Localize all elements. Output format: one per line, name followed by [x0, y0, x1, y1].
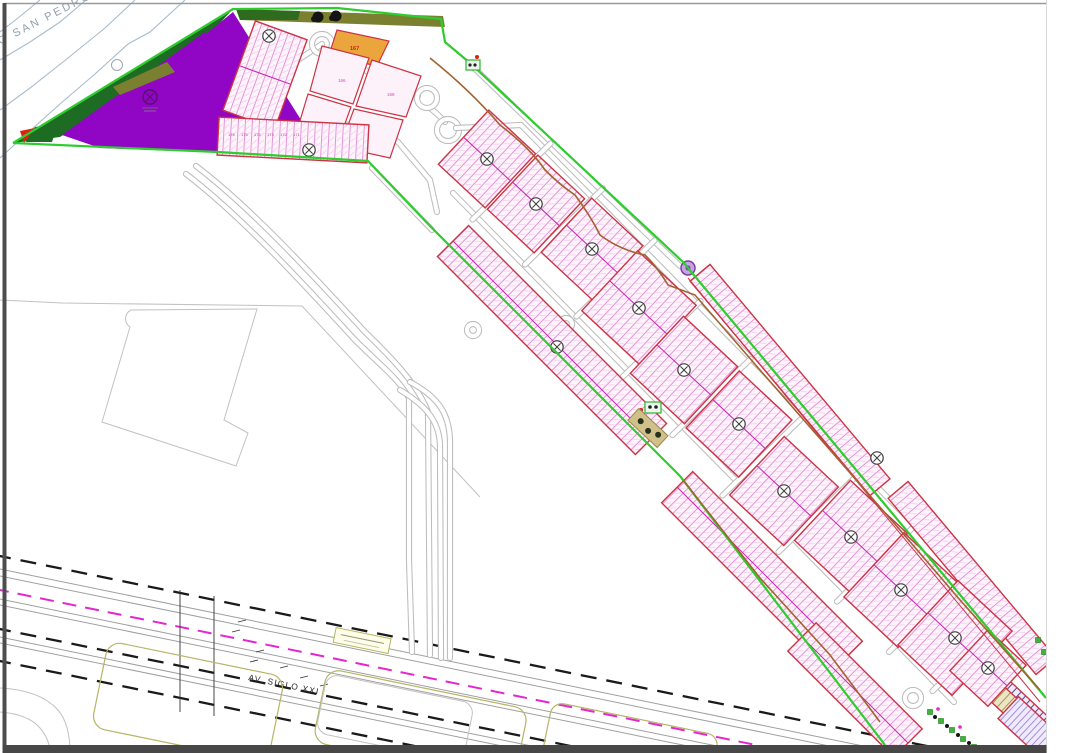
block-marker — [303, 144, 315, 156]
green-marker-icon — [939, 719, 944, 724]
lot-number: 174 — [254, 132, 261, 137]
block-marker — [481, 153, 493, 165]
frame-bottom — [3, 745, 1047, 753]
black-dot-icon — [933, 715, 937, 719]
avenue-label: AV. SIGLO XXI — [248, 672, 321, 696]
block-marker — [982, 662, 994, 674]
block-marker — [678, 364, 690, 376]
road — [372, 168, 432, 230]
black-dot-icon — [956, 733, 960, 737]
block-marker — [845, 531, 857, 543]
block-marker — [895, 584, 907, 596]
frame-left — [3, 3, 7, 748]
green-marker-icon — [1036, 638, 1041, 643]
road — [467, 324, 479, 336]
lot-number: 166 — [338, 78, 346, 83]
site-plan-viewer: RIO SAN PEDRO AV. SIGLO XXI — [0, 0, 1080, 753]
site-plan-canvas: RIO SAN PEDRO AV. SIGLO XXI — [0, 0, 1080, 753]
black-dot-icon — [967, 741, 971, 745]
lot-number: 168 — [387, 92, 395, 97]
block-marker — [586, 243, 598, 255]
block-marker — [530, 198, 542, 210]
lot-number: 171 — [293, 132, 300, 137]
block-marker — [871, 452, 883, 464]
tree-icon — [311, 16, 317, 22]
avenue-details: AV. SIGLO XXI — [180, 590, 391, 716]
green-marker-icon — [1042, 650, 1047, 655]
magenta-dot-icon — [936, 707, 940, 711]
lot-number: 175 — [241, 132, 248, 137]
lot-number: 176 — [228, 132, 235, 137]
block-marker — [733, 418, 745, 430]
black-dot-icon — [945, 724, 949, 728]
road — [196, 166, 430, 655]
lot-number: 172 — [280, 132, 287, 137]
south-parcels — [0, 641, 719, 753]
lot-number: 173 — [267, 132, 274, 137]
block-marker — [778, 485, 790, 497]
block-marker — [263, 30, 275, 42]
servitude-band-green — [236, 9, 300, 20]
road — [186, 174, 412, 652]
orange-lot-number: 167 — [350, 46, 359, 52]
housing-blocks — [142, 21, 1080, 753]
river-label: RIO SAN PEDRO — [0, 0, 94, 55]
right-margin — [1047, 0, 1080, 753]
green-marker-icon — [950, 728, 955, 733]
magenta-dot-icon — [958, 725, 962, 729]
road — [196, 166, 430, 655]
river-survey-circle — [112, 60, 123, 71]
tree-icon — [329, 15, 335, 21]
green-marker-icon — [928, 710, 933, 715]
equipment-icon — [466, 55, 480, 70]
road — [186, 174, 412, 652]
block-marker — [949, 632, 961, 644]
green-marker-icon — [961, 737, 966, 742]
block-marker — [551, 341, 563, 353]
block-marker — [633, 302, 645, 314]
